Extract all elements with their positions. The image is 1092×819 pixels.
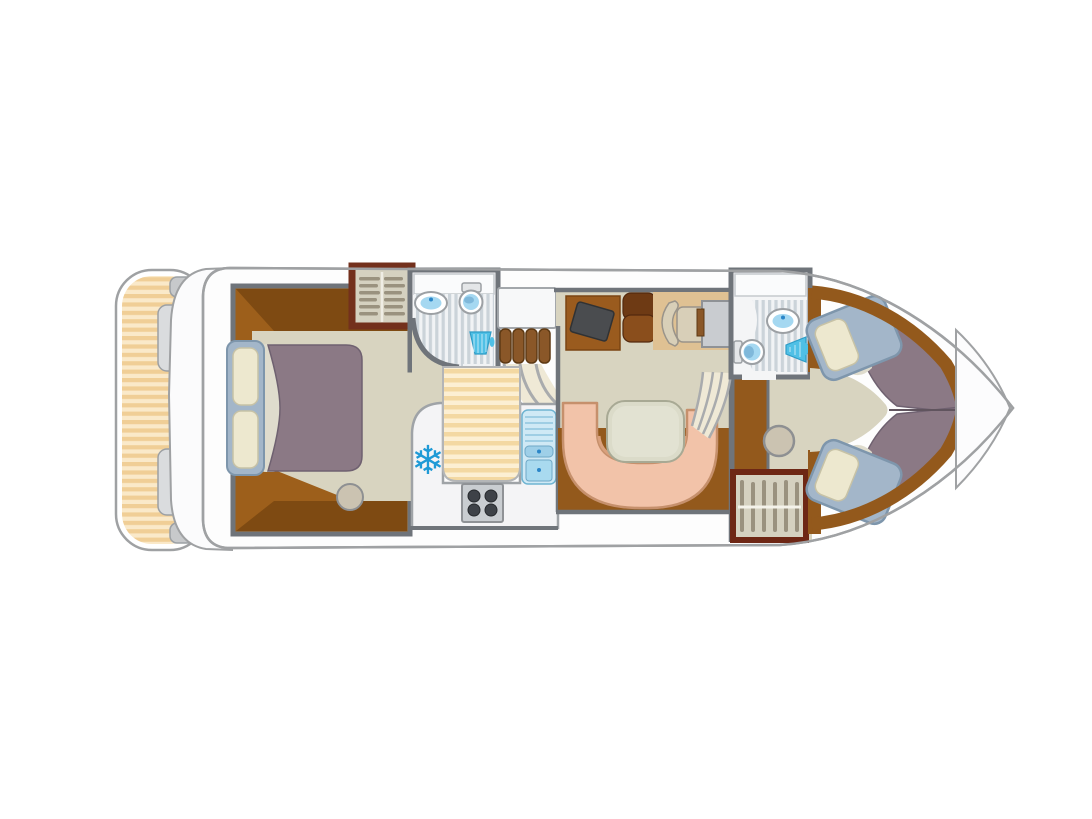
toilet-icon <box>460 283 483 314</box>
bathroom-aft-counter <box>414 274 494 294</box>
boat-floorplan-canvas: ❄ <box>0 0 1092 819</box>
boat-floorplan: ❄ <box>0 0 1092 819</box>
seat-cushion-bottom <box>623 315 656 342</box>
bathroom-aft <box>410 270 498 373</box>
bathroom-fore-door-opening <box>742 371 776 380</box>
bathroom-fore <box>731 270 810 380</box>
corridor-stool <box>764 426 794 456</box>
helm-wheel <box>697 309 704 336</box>
wardrobe-fore <box>733 472 806 540</box>
wardrobe-aft <box>352 266 412 326</box>
corridor-wood-patch <box>733 378 768 472</box>
washbasin-icon <box>415 292 447 314</box>
washbasin-icon <box>767 309 799 333</box>
galley-floor-runner <box>443 367 520 481</box>
companionway-landing <box>498 288 556 328</box>
sink-faucet-icon <box>522 410 556 484</box>
helm-console <box>702 301 730 347</box>
master-bed-pillow-top <box>233 348 258 405</box>
master-cabin-stool <box>337 484 363 510</box>
four-burner-stove-icon <box>462 484 503 522</box>
fridge-snowflake-icon: ❄ <box>411 438 445 484</box>
toilet-icon <box>734 340 764 364</box>
master-bed-pillow-bottom <box>233 411 258 468</box>
bathroom-fore-counter <box>735 274 806 296</box>
dinette-table-top <box>612 406 679 457</box>
master-bed-duvet <box>268 345 362 471</box>
